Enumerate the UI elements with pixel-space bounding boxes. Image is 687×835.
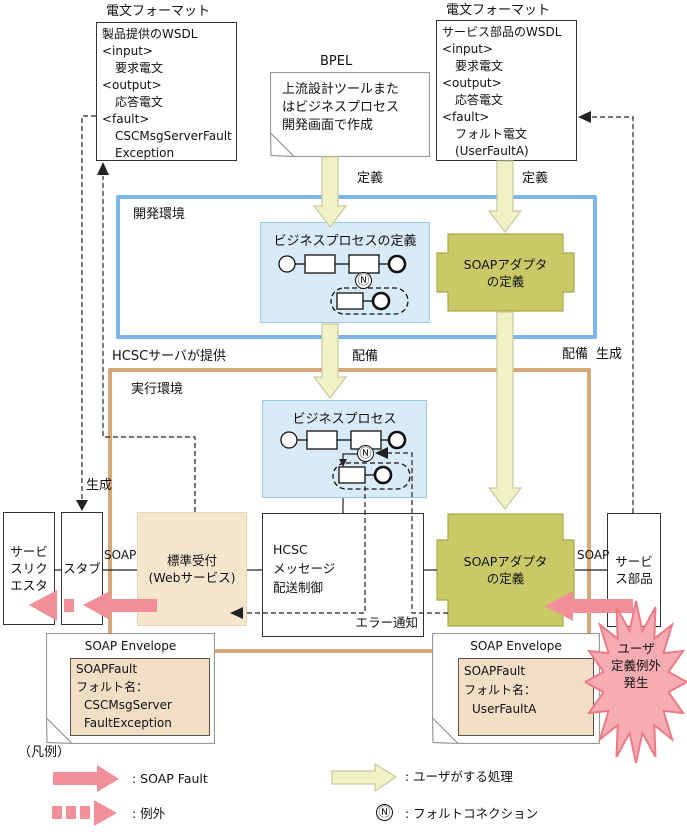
legend-exception-dash (80, 806, 90, 819)
fault-line: UserFaultA (464, 700, 588, 719)
service-requester-label: サービ スリク エスタ (10, 543, 48, 594)
soap-fault-detail-left: SOAPFault フォルト名： CSCMsgServer FaultExcep… (70, 658, 210, 736)
soap-envelope-note-right: SOAP Envelope SOAPFault フォルト名： UserFault… (432, 633, 600, 744)
wsdl-line: 応答電文 (102, 94, 231, 111)
soap-envelope-left-title: SOAP Envelope (46, 633, 215, 655)
msg-format-left-box: 製品提供のWSDL <input> 要求電文 <output> 応答電文 <fa… (96, 22, 237, 161)
soap-adapter-definition-runtime: SOAPアダプタ の定義 (436, 513, 575, 627)
soap-fault-detail-right: SOAPFault フォルト名： UserFaultA (458, 658, 594, 736)
diagram: 電文フォーマット 製品提供のWSDL <input> 要求電文 <output>… (0, 0, 687, 835)
activity-icon (339, 467, 365, 483)
stub-label: スタブ (63, 560, 101, 577)
legend-exception-dash (52, 806, 62, 819)
end-node-icon (373, 293, 389, 309)
wsdl-line: サービス部品のWSDL (442, 24, 571, 41)
flow-label-deploy-right: 配備 (562, 347, 588, 362)
msg-format-left-title: 電文フォーマット (106, 4, 210, 20)
end-node-icon (389, 432, 405, 448)
fault-connection-glyph: Ⓝ (359, 446, 371, 460)
wsdl-line: <output> (442, 75, 571, 92)
bpel-note-text: 上流設計ツールまた はビジネスプロセス 開発画面で作成 (270, 72, 430, 135)
wsdl-line: 要求電文 (442, 58, 571, 75)
flow-label-define-left: 定義 (357, 171, 383, 186)
hcsc-message-control-box: HCSC メッセージ 配送制御 エラー通知 (262, 513, 424, 637)
legend-exception-label: : 例外 (132, 806, 165, 821)
fault-line: フォルト名： (76, 678, 204, 696)
fault-line: FaultException (76, 714, 204, 732)
soap-envelope-note-left: SOAP Envelope SOAPFault フォルト名： CSCMsgSer… (46, 633, 215, 744)
soap-label-right: SOAP (577, 546, 609, 564)
wsdl-line: <fault> (442, 109, 571, 126)
process-flow-diagram (261, 223, 431, 324)
wsdl-line: Exception (102, 145, 231, 162)
standard-reception-label: 標準受付 (Webサービス) (148, 552, 235, 586)
business-process-box: ビジネスプロセス (262, 400, 427, 498)
end-node-icon (375, 467, 391, 483)
legend-user-process-arrow (332, 764, 396, 791)
activity-icon (305, 255, 335, 273)
fault-connection-icon: Ⓝ (376, 804, 393, 821)
start-node-icon (279, 256, 295, 272)
error-notice-label: エラー通知 (355, 614, 418, 631)
wsdl-line: フォルト電文 (442, 126, 571, 143)
flow-label-generate-right: 生成 (596, 347, 622, 362)
fault-line: フォルト名： (464, 681, 588, 700)
soap-envelope-right-title: SOAP Envelope (432, 633, 600, 655)
wsdl-line: <input> (102, 43, 231, 60)
wsdl-line: CSCMsgServerFault (102, 128, 231, 145)
end-node-icon (389, 256, 405, 272)
fault-line: CSCMsgServer (76, 696, 204, 714)
business-process-definition-box: ビジネスプロセスの定義 (260, 222, 430, 323)
wsdl-line: 応答電文 (442, 92, 571, 109)
bpel-label: BPEL (320, 54, 352, 70)
start-node-icon (281, 432, 297, 448)
legend-soap-fault-label: : SOAP Fault (132, 771, 208, 786)
soap-label-left: SOAP (104, 546, 136, 564)
wsdl-line: <output> (102, 77, 231, 94)
fault-connection-icon: Ⓝ (355, 272, 372, 289)
legend-exception-arrow-head (94, 800, 117, 826)
bpel-note: 上流設計ツールまた はビジネスプロセス 開発画面で作成 (270, 72, 430, 157)
flow-label-deploy-left: 配備 (352, 349, 378, 364)
fault-connection-glyph: Ⓝ (357, 273, 369, 287)
fault-line: SOAPFault (76, 660, 204, 678)
flow-label-generate-left: 生成 (86, 478, 112, 493)
wsdl-line: <fault> (102, 111, 231, 128)
generate-stub-line (82, 116, 96, 499)
generate-wsdl-right-line (592, 117, 633, 513)
fault-connection-glyph: Ⓝ (378, 805, 390, 819)
legend-fault-connection-label: : フォルトコネクション (405, 806, 538, 821)
process-flow-diagram (263, 401, 428, 499)
flow-label-define-right: 定義 (522, 171, 548, 186)
user-exception-burst: ユーザ 定義例外 発生 (585, 600, 687, 768)
activity-icon (307, 431, 337, 449)
runtime-environment-label: 実行環境 (131, 382, 183, 397)
standard-reception-box: 標準受付 (Webサービス) (137, 512, 247, 626)
legend-soap-fault-arrow (53, 765, 119, 792)
legend-user-process-label: : ユーザがする処理 (405, 769, 513, 784)
msg-format-right-title: 電文フォーマット (446, 3, 550, 19)
activity-icon (349, 255, 379, 273)
hcsc-message-control-label: HCSC メッセージ 配送制御 (263, 514, 335, 597)
fault-connection-icon: Ⓝ (357, 445, 374, 462)
stub-box: スタブ (61, 512, 103, 625)
service-part-label: サービ ス部品 (615, 553, 653, 587)
wsdl-line: (UserFaultA) (442, 143, 571, 160)
legend-title: （凡例） (18, 745, 70, 760)
legend-exception-dash (66, 806, 76, 819)
hcsc-provides-label: HCSCサーバが提供 (112, 349, 226, 364)
soap-adapter-definition-runtime-label: SOAPアダプタ の定義 (436, 513, 575, 627)
soap-adapter-definition-dev: SOAPアダプタ の定義 (436, 233, 575, 312)
dev-environment-label: 開発環境 (133, 207, 185, 222)
activity-icon (337, 293, 363, 309)
wsdl-line: 製品提供のWSDL (102, 26, 231, 43)
msg-format-right-box: サービス部品のWSDL <input> 要求電文 <output> 応答電文 <… (436, 20, 577, 161)
user-exception-burst-text: ユーザ 定義例外 発生 (585, 640, 687, 691)
service-requester-box: サービ スリク エスタ (3, 512, 55, 625)
wsdl-line: <input> (442, 41, 571, 58)
fault-line: SOAPFault (464, 662, 588, 681)
soap-adapter-definition-dev-label: SOAPアダプタ の定義 (436, 233, 575, 312)
wsdl-line: 要求電文 (102, 60, 231, 77)
